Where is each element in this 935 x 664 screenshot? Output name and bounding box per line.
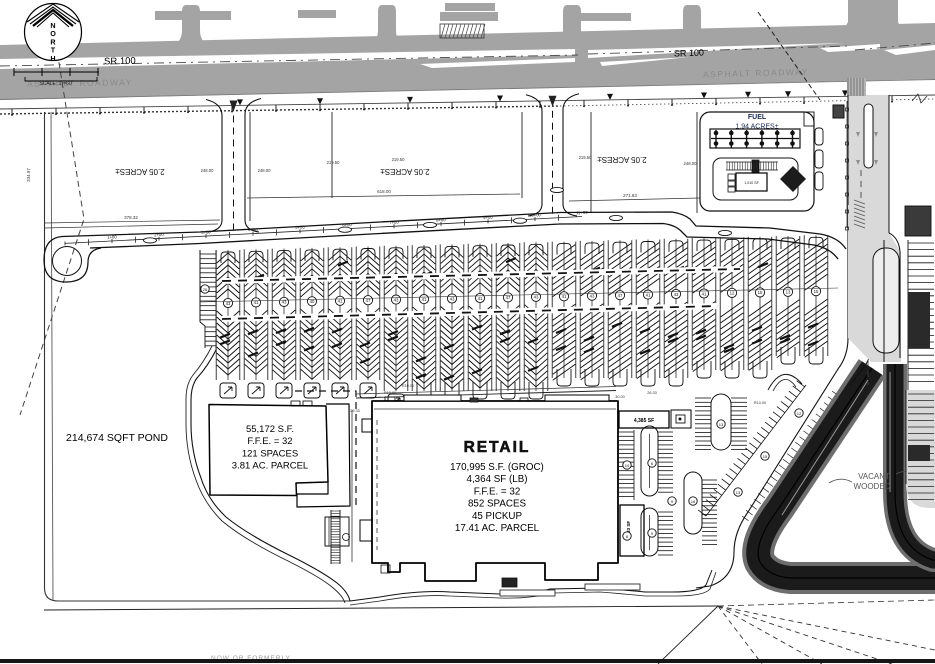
svg-text:248.00: 248.00 xyxy=(201,168,214,173)
svg-text:F.F.E. = 32: F.F.E. = 32 xyxy=(474,486,521,497)
svg-text:FUEL: FUEL xyxy=(748,114,767,121)
svg-text:30.00: 30.00 xyxy=(615,395,625,399)
svg-text:12: 12 xyxy=(797,411,802,416)
svg-text:SCALE: 1"=60': SCALE: 1"=60' xyxy=(39,81,72,87)
svg-text:271.83: 271.83 xyxy=(623,193,637,198)
svg-text:13: 13 xyxy=(786,290,791,295)
svg-text:170,995 S.F. (GROC): 170,995 S.F. (GROC) xyxy=(450,462,544,473)
svg-text:15: 15 xyxy=(763,454,768,459)
svg-text:8+00: 8+00 xyxy=(436,217,446,223)
svg-text:41: 41 xyxy=(646,292,651,297)
svg-text:5+00: 5+00 xyxy=(295,224,305,230)
svg-text:16: 16 xyxy=(691,499,696,504)
svg-text:VACANT: VACANT xyxy=(858,472,890,481)
svg-text:43: 43 xyxy=(450,296,455,301)
svg-text:9+00: 9+00 xyxy=(483,215,493,221)
svg-text:H: H xyxy=(50,54,55,63)
svg-text:2.05 ACRES±: 2.05 ACRES± xyxy=(380,167,430,176)
svg-text:4+00: 4+00 xyxy=(248,227,258,233)
svg-text:1,010 SF: 1,010 SF xyxy=(744,181,759,185)
svg-text:10: 10 xyxy=(625,463,630,468)
svg-text:3.81 AC. PARCEL: 3.81 AC. PARCEL xyxy=(232,461,308,472)
svg-text:41: 41 xyxy=(562,294,567,299)
svg-text:R10.00: R10.00 xyxy=(402,384,414,388)
svg-text:219.50: 219.50 xyxy=(392,157,405,162)
svg-text:618.00: 618.00 xyxy=(377,189,391,194)
svg-text:1+00: 1+00 xyxy=(107,234,117,240)
svg-text:SR 100: SR 100 xyxy=(674,47,704,58)
svg-text:47: 47 xyxy=(366,298,371,303)
svg-text:4,364 SF (LB): 4,364 SF (LB) xyxy=(467,474,528,485)
svg-text:SR 100: SR 100 xyxy=(104,56,136,68)
svg-text:248.00: 248.00 xyxy=(258,168,271,173)
svg-text:RETAIL: RETAIL xyxy=(464,439,531,456)
svg-text:R10.00: R10.00 xyxy=(754,401,766,405)
svg-text:13: 13 xyxy=(736,490,741,495)
svg-text:378.32: 378.32 xyxy=(124,215,138,220)
svg-text:7+00: 7+00 xyxy=(389,220,399,226)
svg-text:43: 43 xyxy=(590,294,595,299)
svg-text:219.50: 219.50 xyxy=(327,160,340,165)
svg-text:15: 15 xyxy=(758,290,763,295)
svg-text:41: 41 xyxy=(422,297,427,302)
svg-text:47: 47 xyxy=(618,293,623,298)
svg-text:219.50: 219.50 xyxy=(579,155,592,160)
svg-text:15: 15 xyxy=(814,289,819,294)
svg-text:10+00: 10+00 xyxy=(529,212,542,218)
svg-text:R10.00: R10.00 xyxy=(384,391,396,395)
svg-text:47: 47 xyxy=(506,295,511,300)
svg-text:29.33: 29.33 xyxy=(350,409,360,413)
svg-text:55,172 S.F.: 55,172 S.F. xyxy=(246,424,294,435)
svg-text:2+00: 2+00 xyxy=(154,232,164,238)
svg-text:43: 43 xyxy=(674,292,679,297)
svg-text:3+00: 3+00 xyxy=(201,229,211,235)
svg-text:121 SPACES: 121 SPACES xyxy=(242,448,298,459)
svg-text:43: 43 xyxy=(394,297,399,302)
svg-text:4,385 SF: 4,385 SF xyxy=(634,418,654,424)
svg-text:41: 41 xyxy=(478,296,483,301)
svg-text:F.F.E. = 32: F.F.E. = 32 xyxy=(247,436,292,447)
svg-text:334.97: 334.97 xyxy=(26,168,31,182)
svg-text:26: 26 xyxy=(203,287,208,292)
svg-text:11+00: 11+00 xyxy=(576,210,588,216)
svg-text:41: 41 xyxy=(338,299,343,304)
svg-text:214,674 SQFT POND: 214,674 SQFT POND xyxy=(66,432,168,444)
svg-text:43: 43 xyxy=(534,295,539,300)
svg-text:2.05 ACRES±: 2.05 ACRES± xyxy=(115,167,165,176)
svg-text:248.00: 248.00 xyxy=(684,161,697,166)
svg-text:12: 12 xyxy=(730,291,735,296)
svg-text:2.05 ACRES±: 2.05 ACRES± xyxy=(597,155,647,164)
svg-text:WOODED: WOODED xyxy=(854,482,891,491)
svg-text:45 PICKUP: 45 PICKUP xyxy=(472,511,523,522)
svg-text:41: 41 xyxy=(702,291,707,296)
svg-text:852 SPACES: 852 SPACES xyxy=(468,499,527,510)
svg-text:26.33: 26.33 xyxy=(647,391,657,395)
svg-text:17.41 AC. PARCEL: 17.41 AC. PARCEL xyxy=(455,523,540,534)
svg-text:13: 13 xyxy=(719,422,724,427)
